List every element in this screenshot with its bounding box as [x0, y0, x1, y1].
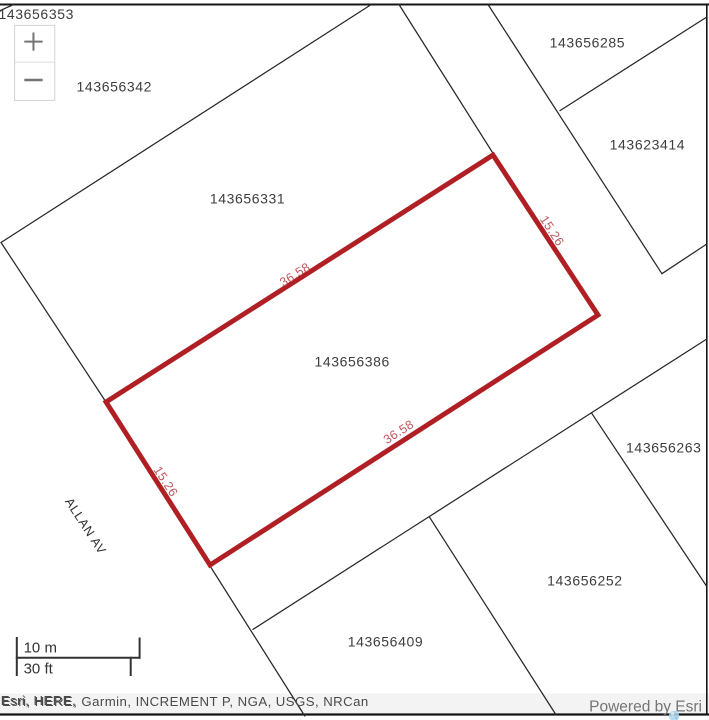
svg-text:Esri, HERE,: Esri, HERE, [1, 693, 76, 708]
svg-text:143656353: 143656353 [0, 6, 74, 22]
svg-text:143656386: 143656386 [314, 354, 389, 370]
svg-text:143656331: 143656331 [210, 191, 285, 207]
svg-text:Powered by Esri: Powered by Esri [589, 699, 702, 716]
svg-text:143656263: 143656263 [626, 440, 701, 456]
svg-text:143656285: 143656285 [550, 34, 625, 50]
svg-text:30 ft: 30 ft [24, 661, 54, 678]
svg-text:143623414: 143623414 [610, 137, 685, 153]
svg-text:143656252: 143656252 [547, 572, 622, 588]
svg-text:10 m: 10 m [24, 640, 57, 657]
svg-text:143656409: 143656409 [348, 634, 423, 650]
svg-text:143656342: 143656342 [77, 78, 152, 94]
